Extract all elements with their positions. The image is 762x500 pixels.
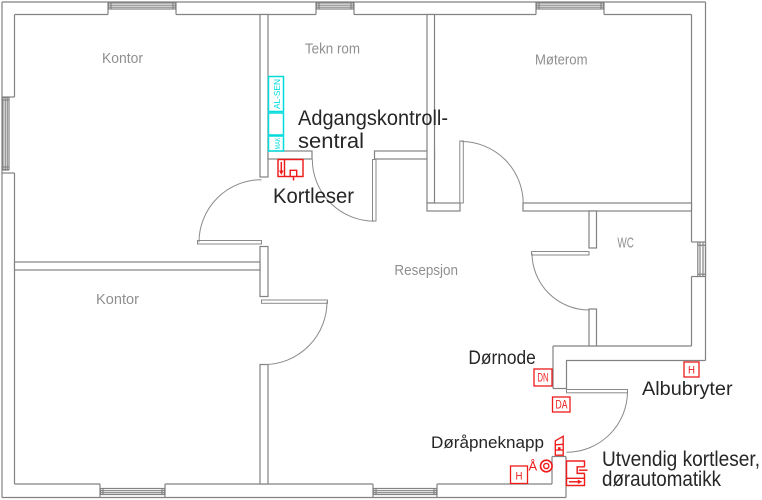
svg-text:Kontor: Kontor bbox=[102, 51, 143, 67]
svg-text:AL-SEN: AL-SEN bbox=[273, 79, 282, 109]
svg-text:Kortleser: Kortleser bbox=[273, 184, 354, 208]
svg-text:Tekn rom: Tekn rom bbox=[305, 42, 360, 58]
svg-text:H: H bbox=[516, 471, 523, 483]
svg-text:Døråpneknapp: Døråpneknapp bbox=[431, 434, 544, 452]
svg-text:Albubryter: Albubryter bbox=[642, 379, 733, 400]
svg-text:dørautomatikk: dørautomatikk bbox=[602, 467, 721, 491]
svg-text:DA: DA bbox=[556, 398, 568, 412]
svg-text:sentral: sentral bbox=[298, 129, 364, 153]
svg-text:Adgangskontroll-: Adgangskontroll- bbox=[298, 106, 448, 130]
svg-text:DN: DN bbox=[538, 371, 549, 385]
svg-text:Kontor: Kontor bbox=[96, 292, 139, 308]
svg-text:Resepsjon: Resepsjon bbox=[394, 263, 458, 279]
svg-text:H: H bbox=[688, 365, 695, 377]
svg-text:WC: WC bbox=[617, 236, 634, 252]
svg-text:Møterom: Møterom bbox=[535, 53, 588, 69]
svg-text:Å: Å bbox=[529, 458, 538, 473]
svg-text:Dørnode: Dørnode bbox=[468, 348, 535, 369]
svg-text:MAK: MAK bbox=[275, 137, 282, 149]
